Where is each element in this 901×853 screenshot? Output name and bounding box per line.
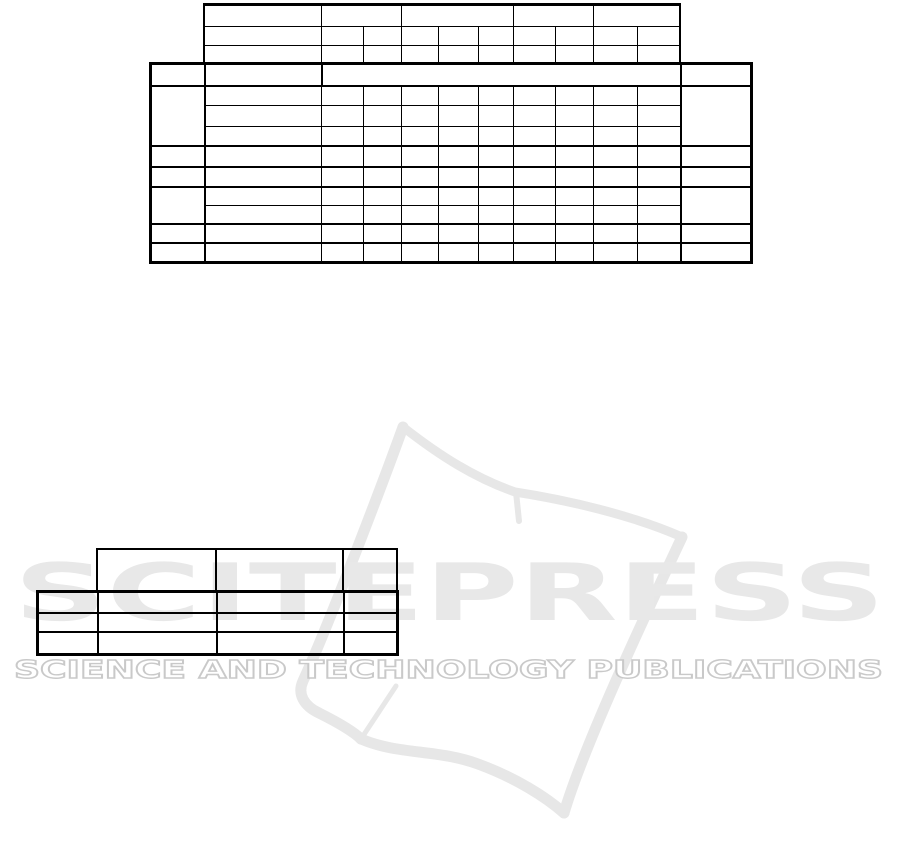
table-cell xyxy=(364,127,402,146)
table-cell xyxy=(402,206,439,224)
table-cell xyxy=(593,46,637,64)
table-cell xyxy=(402,127,439,146)
table-cell xyxy=(151,224,205,243)
table-row xyxy=(151,146,752,167)
table-row xyxy=(151,243,752,263)
table-row xyxy=(204,46,680,64)
table-cell xyxy=(322,167,364,187)
table-cell xyxy=(594,206,638,224)
table-cell xyxy=(151,146,205,167)
table-cell xyxy=(402,86,439,106)
table-cell xyxy=(438,46,478,64)
table-cell xyxy=(98,613,217,632)
table-cell xyxy=(205,243,322,263)
table-cell xyxy=(479,106,514,127)
table-cell xyxy=(681,64,752,86)
table-cell xyxy=(479,206,514,224)
table-row xyxy=(204,5,680,27)
table-cell xyxy=(594,86,638,106)
table-cell xyxy=(556,167,594,187)
table-cell xyxy=(204,46,321,64)
table-cell xyxy=(322,64,681,86)
table-cell xyxy=(638,187,681,206)
table-cell xyxy=(438,27,478,46)
table-cell xyxy=(151,243,205,263)
table-cell xyxy=(513,5,593,27)
table-cell xyxy=(556,127,594,146)
table-cell xyxy=(439,127,479,146)
table-cell xyxy=(514,224,556,243)
table-cell xyxy=(205,187,322,206)
table-row xyxy=(151,187,752,206)
table-cell xyxy=(322,127,364,146)
table-cell xyxy=(205,64,322,86)
table-cell xyxy=(364,167,402,187)
table-cell xyxy=(217,613,344,632)
table-cell xyxy=(402,146,439,167)
table-cell xyxy=(402,187,439,206)
table-cell xyxy=(439,86,479,106)
table-cell xyxy=(594,224,638,243)
table-cell xyxy=(205,167,322,187)
table-cell xyxy=(321,5,401,27)
table-cell xyxy=(98,592,217,613)
table-cell xyxy=(594,167,638,187)
table-cell xyxy=(439,167,479,187)
table-cell xyxy=(594,187,638,206)
table-cell xyxy=(204,5,321,27)
table-cell xyxy=(363,27,401,46)
table-cell xyxy=(322,243,364,263)
table-cell xyxy=(514,86,556,106)
table-cell xyxy=(514,187,556,206)
table-cell xyxy=(439,106,479,127)
table-cell xyxy=(38,613,98,632)
table-cell xyxy=(439,243,479,263)
watermark-tagline-text: SCIENCE AND TECHNOLOGY PUBLICATIONS xyxy=(14,655,883,684)
table-cell xyxy=(681,146,752,167)
table-cell xyxy=(681,167,752,187)
table-cell xyxy=(478,27,513,46)
table-cell xyxy=(681,187,752,224)
table-row xyxy=(97,549,397,591)
table-cell xyxy=(205,206,322,224)
table-cell xyxy=(402,167,439,187)
table-cell xyxy=(479,146,514,167)
table-cell xyxy=(151,64,205,86)
table-cell xyxy=(439,224,479,243)
table-cell xyxy=(478,46,513,64)
table-row xyxy=(151,224,752,243)
table-cell xyxy=(556,243,594,263)
table-cell xyxy=(556,106,594,127)
table-cell xyxy=(364,146,402,167)
table-cell xyxy=(638,224,681,243)
table-cell xyxy=(205,224,322,243)
table-cell xyxy=(402,243,439,263)
table-cell xyxy=(681,86,752,146)
table-cell xyxy=(364,187,402,206)
table-cell xyxy=(151,187,205,224)
table-cell xyxy=(363,46,401,64)
table-cell xyxy=(594,146,638,167)
table-cell xyxy=(151,86,205,146)
table-cell xyxy=(556,86,594,106)
table-cell xyxy=(638,243,681,263)
table-cell xyxy=(205,86,322,106)
table-cell xyxy=(151,167,205,187)
table-row xyxy=(151,86,752,106)
table-cell xyxy=(479,127,514,146)
table-cell xyxy=(556,187,594,206)
table-cell xyxy=(344,632,398,655)
table-cell xyxy=(555,27,593,46)
table-cell xyxy=(205,146,322,167)
table-cell xyxy=(513,27,555,46)
table-cell xyxy=(594,127,638,146)
table-cell xyxy=(555,46,593,64)
table-cell xyxy=(344,613,398,632)
table-row xyxy=(151,64,752,86)
table-cell xyxy=(217,592,344,613)
table-cell xyxy=(98,632,217,655)
table-cell xyxy=(593,5,680,27)
table-cell xyxy=(594,106,638,127)
table-cell xyxy=(205,127,322,146)
table-cell xyxy=(364,243,402,263)
table-cell xyxy=(556,146,594,167)
table-cell xyxy=(364,86,402,106)
table-cell xyxy=(637,46,680,64)
table-cell xyxy=(638,167,681,187)
table-cell xyxy=(637,27,680,46)
table-cell xyxy=(205,106,322,127)
table-row xyxy=(38,632,398,655)
table-cell xyxy=(322,106,364,127)
table-cell xyxy=(514,127,556,146)
table-cell xyxy=(216,549,343,591)
small-table-header xyxy=(96,548,398,591)
table-cell xyxy=(402,224,439,243)
table-row xyxy=(151,206,752,224)
table-cell xyxy=(321,46,363,64)
table-cell xyxy=(439,187,479,206)
table-cell xyxy=(556,206,594,224)
table-cell xyxy=(593,27,637,46)
table-cell xyxy=(479,167,514,187)
table-cell xyxy=(638,106,681,127)
table-cell xyxy=(401,5,513,27)
table-cell xyxy=(514,243,556,263)
document-page: SCITEPRESS SCIENCE AND TECHNOLOGY PUBLIC… xyxy=(0,0,901,853)
table-cell xyxy=(322,86,364,106)
table-cell xyxy=(364,206,402,224)
table-cell xyxy=(322,146,364,167)
table-cell xyxy=(479,86,514,106)
table-cell xyxy=(322,187,364,206)
table-cell xyxy=(439,146,479,167)
table-cell xyxy=(343,549,397,591)
table-row xyxy=(204,27,680,46)
table-cell xyxy=(322,224,364,243)
small-table-body xyxy=(36,590,399,656)
table-cell xyxy=(321,27,363,46)
table-cell xyxy=(514,206,556,224)
main-results-table xyxy=(149,62,753,264)
table-cell xyxy=(439,206,479,224)
table-cell xyxy=(344,592,398,613)
table-cell xyxy=(638,127,681,146)
table-cell xyxy=(514,167,556,187)
table-cell xyxy=(556,224,594,243)
table-cell xyxy=(514,146,556,167)
table-cell xyxy=(401,27,438,46)
table-cell xyxy=(479,224,514,243)
table-cell xyxy=(97,549,216,591)
table-cell xyxy=(638,206,681,224)
table-cell xyxy=(594,243,638,263)
table-cell xyxy=(638,146,681,167)
top-header-grid-table xyxy=(203,3,681,64)
table-row xyxy=(38,613,398,632)
table-cell xyxy=(38,592,98,613)
table-cell xyxy=(514,106,556,127)
table-row xyxy=(151,106,752,127)
table-cell xyxy=(322,206,364,224)
table-cell xyxy=(513,46,555,64)
table-cell xyxy=(401,46,438,64)
table-cell xyxy=(681,224,752,243)
table-cell xyxy=(402,106,439,127)
table-cell xyxy=(364,106,402,127)
table-cell xyxy=(479,187,514,206)
table-cell xyxy=(38,632,98,655)
table-cell xyxy=(638,86,681,106)
table-cell xyxy=(364,224,402,243)
table-row xyxy=(151,167,752,187)
table-cell xyxy=(681,243,752,263)
table-cell xyxy=(479,243,514,263)
table-row xyxy=(151,127,752,146)
table-cell xyxy=(217,632,344,655)
table-row xyxy=(38,592,398,613)
table-cell xyxy=(204,27,321,46)
